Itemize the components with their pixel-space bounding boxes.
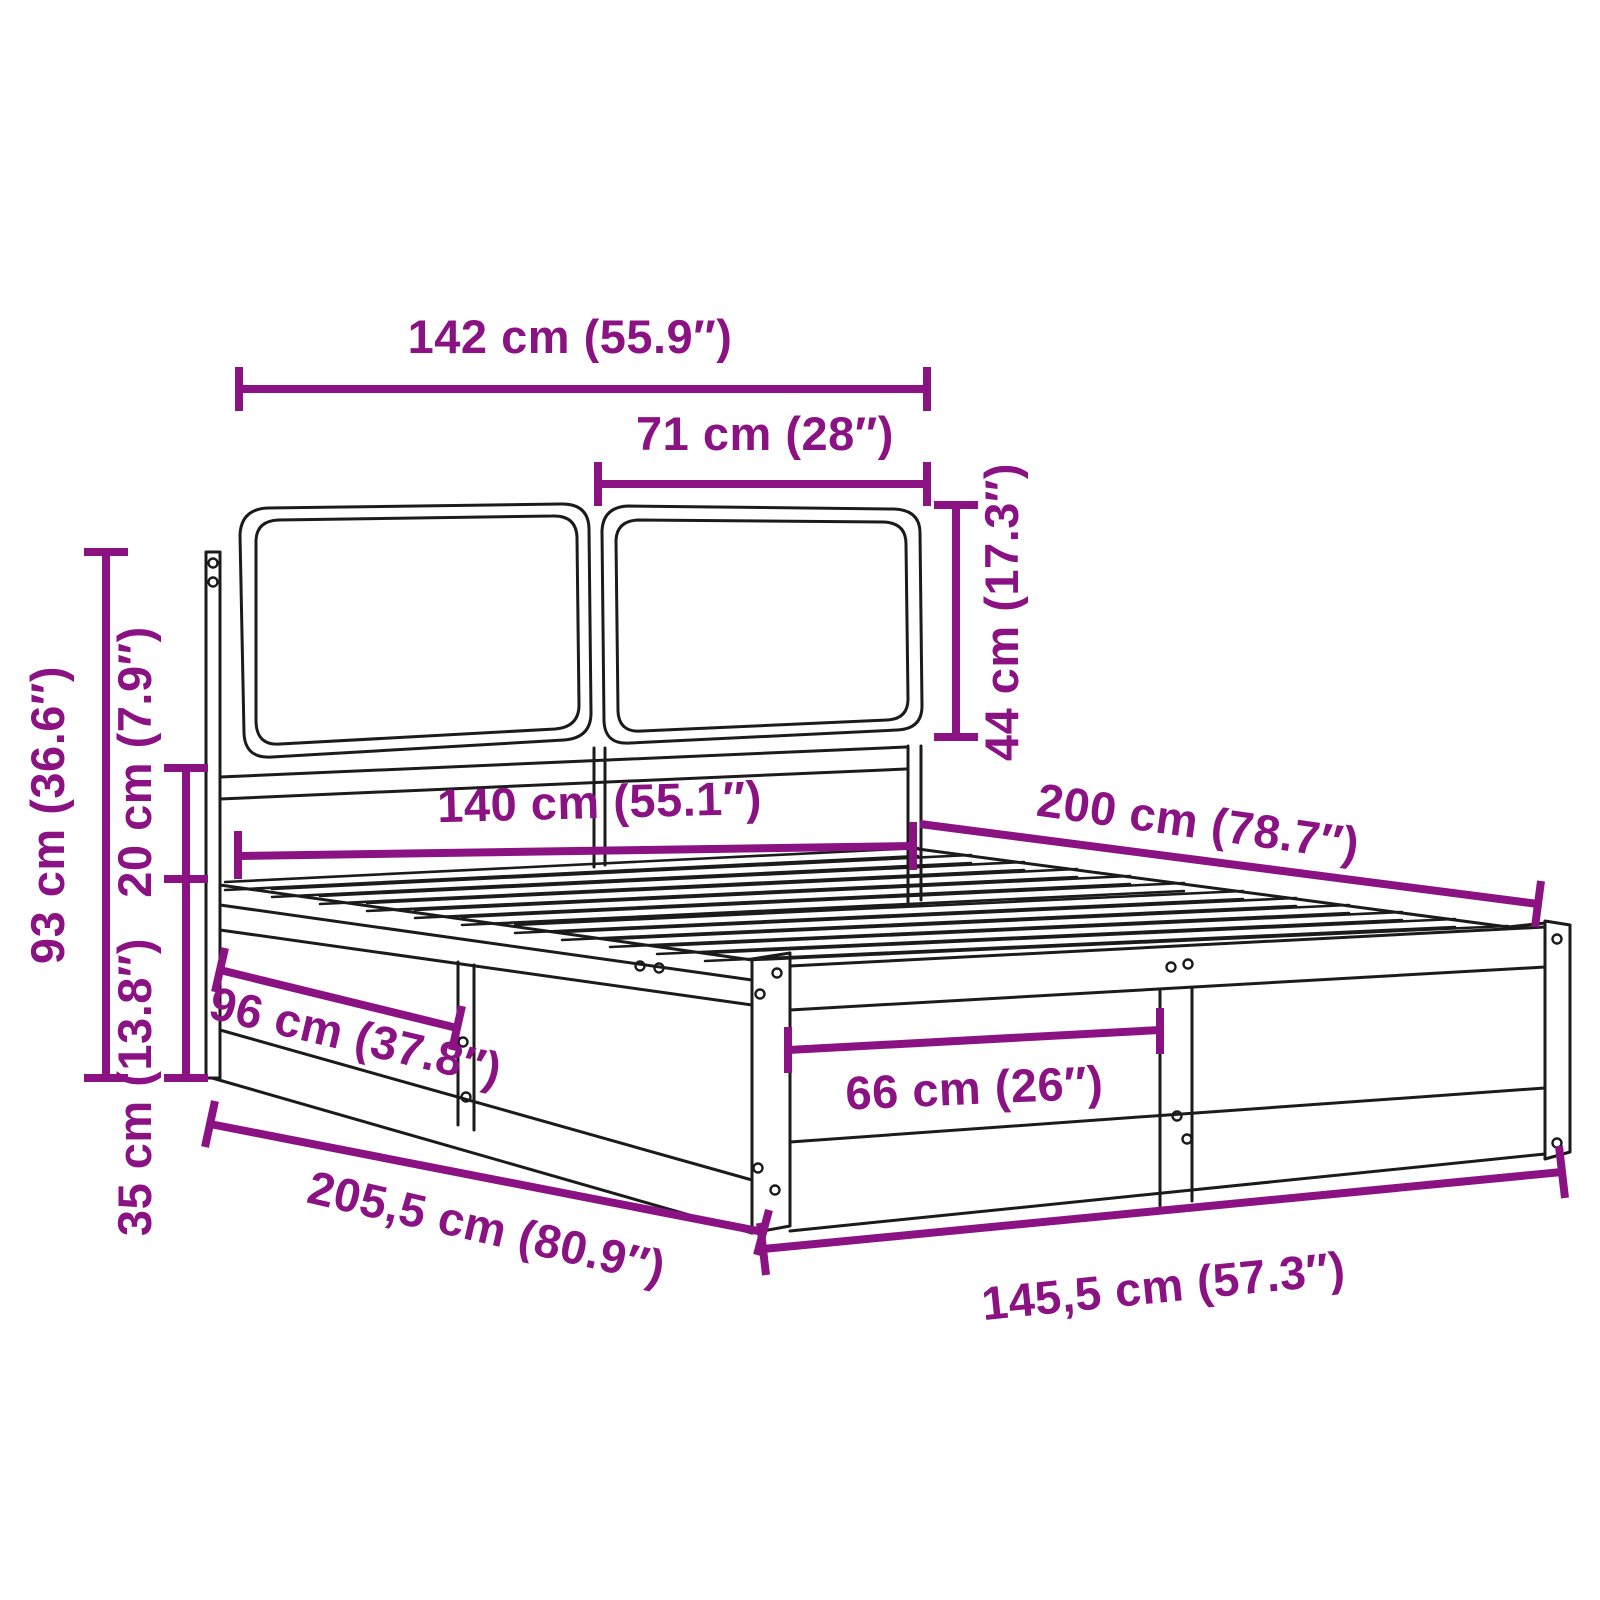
screw-icon [1553, 935, 1562, 944]
screw-icon [1183, 1135, 1192, 1144]
dim-label: 142 cm (55.9″) [408, 310, 733, 363]
screw-icon [754, 1164, 763, 1173]
foot-face-middle-stile [1160, 987, 1192, 1206]
screw-icon [209, 559, 218, 568]
dim-label: 66 cm (26″) [844, 1055, 1104, 1119]
screw-icon [209, 578, 218, 587]
dim-rail-gap-height: 20 cm (7.9″) [108, 626, 208, 897]
foot-corner-post [1545, 921, 1570, 1159]
dim-cushion-width: 71 cm (28″) [598, 407, 927, 506]
dim-label: 35 cm (13.8″) [108, 938, 161, 1236]
screw-icon [771, 1186, 780, 1195]
headboard-cushion-right-inner-seam [616, 520, 908, 731]
dim-side-opening: 96 cm (37.8″) [205, 948, 507, 1096]
screw-icon [1184, 960, 1193, 969]
dim-label: 140 cm (55.1″) [437, 771, 763, 832]
dim-label: 96 cm (37.8″) [205, 976, 507, 1096]
dim-label: 44 cm (17.3″) [975, 463, 1028, 761]
bed-drawing [206, 504, 1570, 1233]
dim-frame-height: 35 cm (13.8″) [108, 879, 208, 1236]
dim-label: 20 cm (7.9″) [108, 626, 161, 897]
slats [225, 848, 1508, 961]
screw-icon [1167, 963, 1176, 972]
dim-line [788, 1030, 1160, 1050]
dim-mattress-length: 200 cm (78.7″) [920, 773, 1541, 927]
dim-total-width: 145,5 cm (57.3″) [760, 1146, 1565, 1330]
dim-label: 93 cm (36.6″) [21, 666, 74, 964]
screw-icon [773, 969, 782, 978]
dim-cushion-height: 44 cm (17.3″) [934, 463, 1028, 761]
bed-dimension-diagram: 142 cm (55.9″) 71 cm (28″) 44 cm (17.3″)… [0, 0, 1600, 1600]
screw-icon [756, 990, 765, 999]
diagram-canvas: 142 cm (55.9″) 71 cm (28″) 44 cm (17.3″)… [0, 0, 1600, 1600]
headboard-cushion-left-outline [240, 504, 591, 757]
dim-label: 145,5 cm (57.3″) [979, 1241, 1347, 1330]
dim-line [763, 1172, 1562, 1249]
dim-foot-opening: 66 cm (26″) [788, 1008, 1160, 1120]
dim-label: 71 cm (28″) [636, 407, 894, 460]
dim-label: 200 cm (78.7″) [1034, 773, 1363, 871]
dim-tick [1535, 881, 1541, 927]
dim-total-length: 205,5 cm (80.9″) [205, 1101, 769, 1294]
headboard-cushion-right-outline [602, 506, 922, 743]
headboard-cushion-left-inner-seam [256, 516, 579, 744]
dim-headboard-width: 142 cm (55.9″) [239, 310, 927, 411]
